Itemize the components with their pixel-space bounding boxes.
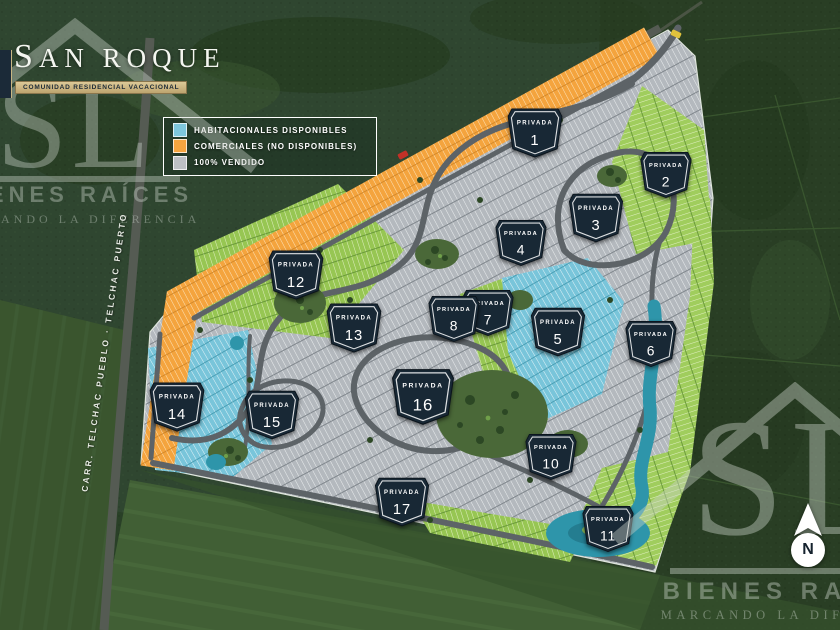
legend-swatch: [173, 139, 187, 153]
svg-text:PRIVADA: PRIVADA: [591, 517, 625, 523]
compass: N: [786, 503, 830, 585]
svg-text:14: 14: [168, 407, 186, 423]
privada-badge-3: PRIVADA 3: [569, 193, 624, 243]
svg-text:11: 11: [600, 527, 616, 543]
legend-label: COMERCIALES (NO DISPONIBLES): [194, 142, 357, 151]
svg-text:PRIVADA: PRIVADA: [402, 383, 443, 390]
north-label: N: [791, 533, 825, 567]
svg-text:PRIVADA: PRIVADA: [336, 316, 372, 322]
privada-badge-8: PRIVADA 8: [428, 296, 480, 343]
legend-label: 100% VENDIDO: [194, 158, 265, 167]
legend-swatch: [173, 156, 187, 170]
svg-text:PRIVADA: PRIVADA: [159, 395, 195, 401]
logo-title: San Roque: [14, 38, 226, 76]
svg-text:3: 3: [591, 218, 600, 234]
svg-text:PRIVADA: PRIVADA: [578, 206, 614, 212]
privada-badge-11: PRIVADA 11: [582, 506, 634, 553]
privada-badge-6: PRIVADA 6: [625, 321, 677, 368]
privada-badges: PRIVADA 1 PRIVADA 2 PRIVADA 3 PRIVADA 4 …: [0, 0, 840, 630]
svg-text:4: 4: [517, 241, 526, 257]
svg-text:PRIVADA: PRIVADA: [634, 332, 668, 338]
svg-text:10: 10: [542, 455, 559, 471]
svg-text:13: 13: [345, 328, 363, 344]
legend-items: HABITACIONALES DISPONIBLESCOMERCIALES (N…: [173, 122, 367, 171]
svg-text:PRIVADA: PRIVADA: [384, 490, 420, 496]
svg-text:PRIVADA: PRIVADA: [534, 445, 568, 451]
legend-item: HABITACIONALES DISPONIBLES: [173, 123, 367, 137]
svg-text:PRIVADA: PRIVADA: [649, 163, 683, 169]
privada-badge-4: PRIVADA 4: [495, 220, 547, 267]
privada-badge-15: PRIVADA 15: [245, 390, 300, 440]
svg-text:PRIVADA: PRIVADA: [437, 307, 471, 313]
legend-item: COMERCIALES (NO DISPONIBLES): [173, 139, 367, 153]
logo: San Roque COMUNIDAD RESIDENCIAL VACACION…: [0, 38, 226, 94]
privada-badge-1: PRIVADA 1: [507, 108, 563, 158]
privada-badge-5: PRIVADA 5: [531, 307, 586, 357]
svg-text:PRIVADA: PRIVADA: [517, 121, 553, 127]
svg-text:5: 5: [553, 332, 562, 348]
svg-text:2: 2: [662, 173, 671, 189]
privada-badge-16: PRIVADA 16: [392, 369, 455, 426]
svg-text:1: 1: [530, 133, 539, 149]
privada-badge-10: PRIVADA 10: [525, 434, 577, 481]
privada-badge-14: PRIVADA 14: [149, 382, 205, 432]
svg-text:12: 12: [287, 275, 305, 291]
svg-text:6: 6: [647, 342, 656, 358]
svg-text:PRIVADA: PRIVADA: [540, 320, 576, 326]
legend: HABITACIONALES DISPONIBLESCOMERCIALES (N…: [163, 117, 377, 176]
svg-text:PRIVADA: PRIVADA: [254, 403, 290, 409]
legend-label: HABITACIONALES DISPONIBLES: [194, 126, 347, 135]
svg-text:8: 8: [450, 317, 459, 333]
logo-shield-icon: [0, 50, 12, 98]
svg-text:17: 17: [393, 502, 411, 518]
svg-text:PRIVADA: PRIVADA: [504, 231, 538, 237]
legend-item: 100% VENDIDO: [173, 156, 367, 170]
privada-badge-17: PRIVADA 17: [375, 477, 430, 527]
privada-badge-13: PRIVADA 13: [326, 303, 382, 353]
logo-tagline: COMUNIDAD RESIDENCIAL VACACIONAL: [15, 81, 187, 94]
svg-text:PRIVADA: PRIVADA: [278, 263, 314, 269]
legend-swatch: [173, 123, 187, 137]
svg-text:16: 16: [413, 396, 434, 415]
privada-badge-12: PRIVADA 12: [268, 250, 324, 300]
site-plan-image: PRIVADA 1 PRIVADA 2 PRIVADA 3 PRIVADA 4 …: [0, 0, 840, 630]
svg-text:7: 7: [484, 311, 493, 327]
privada-badge-2: PRIVADA 2: [640, 152, 692, 199]
svg-text:15: 15: [263, 415, 281, 431]
